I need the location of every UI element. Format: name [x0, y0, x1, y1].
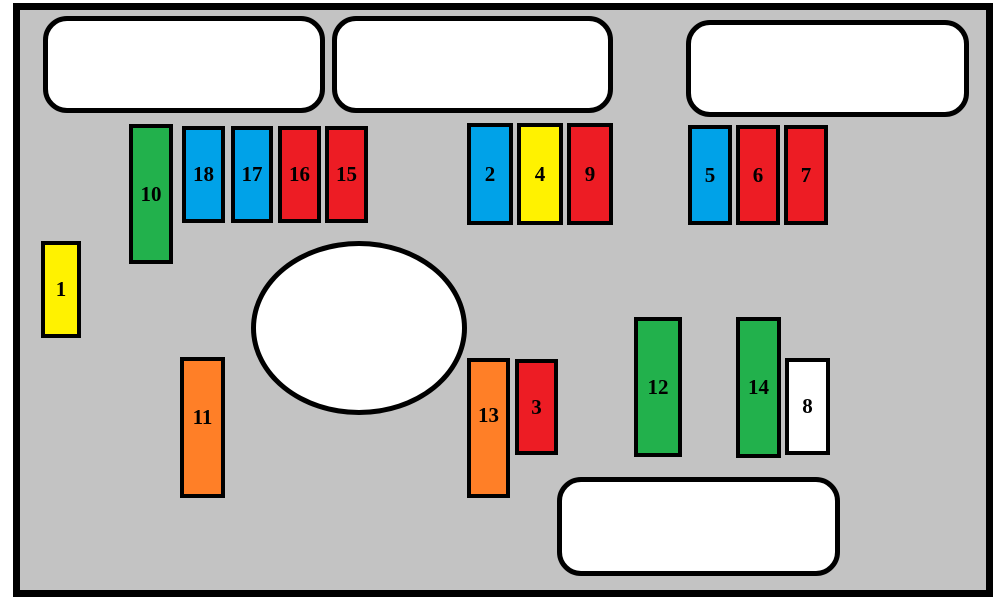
fuse-4: 4 [517, 123, 563, 225]
fuse-12: 12 [634, 317, 682, 457]
fuse-10-label: 10 [141, 184, 162, 205]
fuse-13-label: 13 [478, 405, 499, 426]
fuse-4-label: 4 [535, 164, 546, 185]
fuse-16: 16 [278, 126, 321, 223]
fuse-6: 6 [736, 125, 780, 225]
fuse-1: 1 [41, 241, 81, 338]
fuse-3: 3 [515, 359, 558, 455]
connector-block-bottom [557, 477, 840, 576]
fuse-15-label: 15 [336, 164, 357, 185]
fuse-12-label: 12 [648, 377, 669, 398]
fuse-1-label: 1 [56, 279, 67, 300]
fuse-14: 14 [736, 317, 781, 458]
fuse-2-label: 2 [485, 164, 496, 185]
fuse-18-label: 18 [193, 164, 214, 185]
fuse-7: 7 [784, 125, 828, 225]
fuse-17-label: 17 [242, 164, 263, 185]
fuse-15: 15 [325, 126, 368, 223]
fuse-16-label: 16 [289, 164, 310, 185]
fuse-14-label: 14 [748, 377, 769, 398]
connector-block-top-right [686, 20, 969, 117]
fuse-9: 9 [567, 123, 613, 225]
fuse-17: 17 [231, 126, 273, 223]
fuse-8: 8 [785, 358, 830, 455]
fuse-5-label: 5 [705, 165, 716, 186]
fuse-9-label: 9 [585, 164, 596, 185]
fuse-3-label: 3 [531, 397, 542, 418]
fuse-box-diagram: 110181716152495671113312148 [0, 0, 1001, 599]
fuse-6-label: 6 [753, 165, 764, 186]
fuse-11-label: 11 [193, 407, 213, 428]
fuse-11: 11 [180, 357, 225, 498]
fuse-18: 18 [182, 126, 225, 223]
connector-block-top-middle [332, 16, 613, 113]
center-ellipse [251, 241, 467, 415]
fuse-5: 5 [688, 125, 732, 225]
fuse-2: 2 [467, 123, 513, 225]
connector-block-top-left [43, 16, 325, 113]
fuse-10: 10 [129, 124, 173, 264]
fuse-13: 13 [467, 358, 510, 498]
fuse-7-label: 7 [801, 165, 812, 186]
fuse-8-label: 8 [802, 396, 813, 417]
